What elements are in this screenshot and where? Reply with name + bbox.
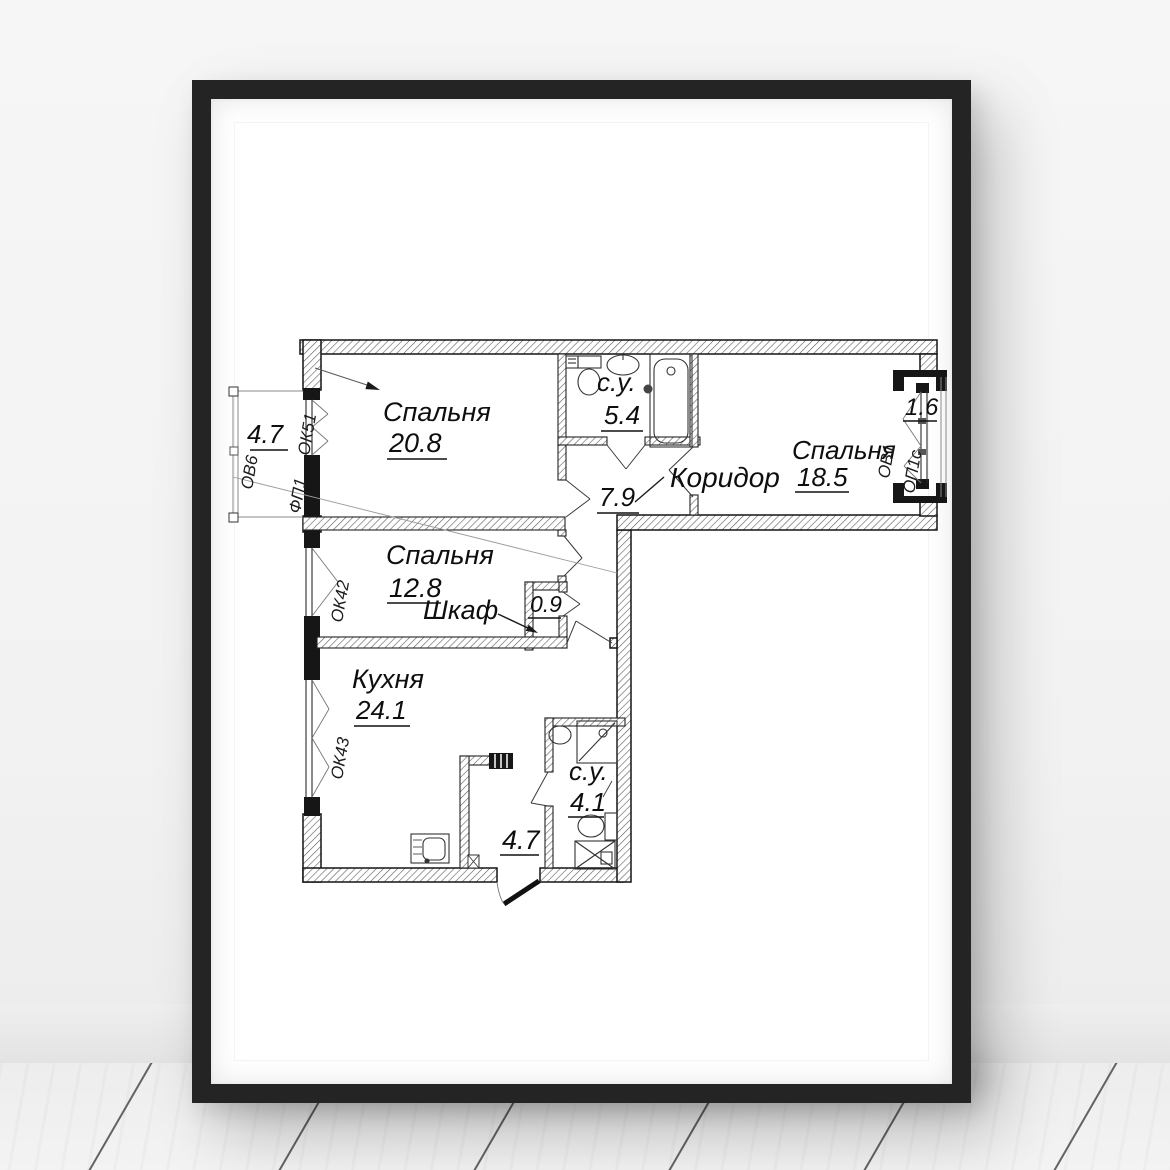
window-label-ok43: ОК43 bbox=[327, 735, 353, 780]
door-bathroom-top bbox=[607, 445, 645, 469]
floor-plank-seam bbox=[1053, 1063, 1122, 1170]
entry-arrow bbox=[315, 368, 380, 390]
door-bedroom-3 bbox=[564, 536, 582, 576]
label-bedroom-1: Спальня 20.8 bbox=[383, 397, 491, 459]
window-label-ok51: ОК51 bbox=[294, 412, 320, 457]
door-kitchen bbox=[567, 621, 612, 643]
svg-text:20.8: 20.8 bbox=[388, 428, 442, 458]
svg-text:4.1: 4.1 bbox=[570, 787, 606, 817]
bathtub-inner bbox=[654, 359, 688, 443]
window-label-ok42: ОК42 bbox=[327, 578, 353, 623]
window-cap bbox=[303, 388, 320, 400]
door-bedroom-1 bbox=[566, 480, 590, 517]
svg-text:1.6: 1.6 bbox=[905, 394, 939, 421]
label-bathroom-top: с.у. 5.4 bbox=[597, 367, 643, 431]
washer-detail bbox=[601, 852, 612, 864]
window-label-ov6: ОВ6 bbox=[237, 453, 262, 490]
label-kitchen: Кухня 24.1 bbox=[352, 664, 424, 726]
partition bbox=[317, 637, 567, 648]
vent-symbol bbox=[644, 385, 653, 394]
wall-segment bbox=[303, 868, 497, 882]
vent-square bbox=[566, 356, 578, 368]
svg-text:Шкаф: Шкаф bbox=[423, 595, 498, 625]
bathtub bbox=[650, 354, 692, 447]
svg-text:24.1: 24.1 bbox=[355, 695, 407, 725]
wall-segment bbox=[540, 868, 623, 882]
wall-segment bbox=[300, 340, 937, 354]
partition bbox=[690, 495, 698, 515]
balcony-tick bbox=[230, 447, 238, 455]
svg-text:Кухня: Кухня bbox=[352, 664, 424, 694]
balcony-right-outline bbox=[941, 377, 946, 497]
svg-text:Спальня: Спальня bbox=[386, 540, 494, 570]
balcony-bracket bbox=[893, 496, 947, 503]
partition bbox=[690, 354, 698, 447]
svg-text:4.7: 4.7 bbox=[247, 419, 285, 449]
corridor-leader bbox=[635, 477, 664, 502]
label-balcony-left: 4.7 bbox=[247, 419, 288, 450]
partition bbox=[460, 756, 469, 868]
partition bbox=[558, 354, 566, 445]
kitchen-fixtures bbox=[411, 834, 449, 863]
faucet bbox=[425, 859, 429, 863]
label-balcony-right: 1.6 bbox=[903, 394, 939, 421]
toilet-tank bbox=[605, 813, 617, 840]
partition bbox=[558, 530, 566, 536]
label-hall: 4.7 bbox=[500, 825, 541, 855]
svg-text:18.5: 18.5 bbox=[797, 462, 848, 492]
label-bathroom-bottom: с.у. 4.1 bbox=[568, 756, 608, 817]
partition bbox=[545, 806, 553, 868]
balcony-corner bbox=[229, 387, 238, 396]
wall-segment bbox=[617, 530, 631, 882]
wall-segment bbox=[920, 354, 937, 372]
partition bbox=[558, 437, 607, 445]
window-ok43 bbox=[306, 680, 329, 797]
label-closet: Шкаф 0.9 bbox=[423, 591, 562, 625]
label-bedroom-3: Спальня 12.8 bbox=[386, 540, 494, 603]
partition bbox=[545, 718, 553, 772]
entrance-door bbox=[497, 881, 539, 904]
balcony-corner bbox=[229, 513, 238, 522]
window-cap bbox=[304, 528, 320, 548]
svg-text:Спальня: Спальня bbox=[383, 397, 491, 427]
svg-text:7.9: 7.9 bbox=[599, 482, 635, 512]
balcony-bracket bbox=[893, 370, 947, 377]
partition bbox=[558, 445, 566, 480]
kitchen-sink-basin bbox=[423, 838, 445, 860]
svg-text:с.у.: с.у. bbox=[597, 367, 636, 397]
scene: { "scene": { "description": "Framed apar… bbox=[0, 0, 1170, 1170]
wall-segment bbox=[303, 340, 321, 390]
window-cap bbox=[304, 797, 320, 816]
label-corridor: Коридор 7.9 bbox=[597, 462, 780, 513]
svg-text:5.4: 5.4 bbox=[604, 400, 640, 430]
floor-plan: Спальня 20.8 с.у. 5.4 Коридор 7.9 Спальн… bbox=[225, 330, 955, 950]
bathtub-drain bbox=[667, 367, 675, 375]
svg-text:0.9: 0.9 bbox=[530, 591, 562, 617]
door-closet bbox=[563, 592, 580, 616]
wall-segment bbox=[617, 515, 937, 530]
svg-text:Коридор: Коридор bbox=[670, 462, 780, 493]
partition bbox=[303, 517, 565, 530]
svg-text:с.у.: с.у. bbox=[569, 756, 608, 786]
toilet-bowl bbox=[578, 815, 604, 837]
floor-plank-seam bbox=[88, 1063, 157, 1170]
balcony-bracket bbox=[893, 377, 904, 391]
svg-text:4.7: 4.7 bbox=[502, 825, 541, 855]
door-bathroom-bottom bbox=[531, 772, 548, 806]
